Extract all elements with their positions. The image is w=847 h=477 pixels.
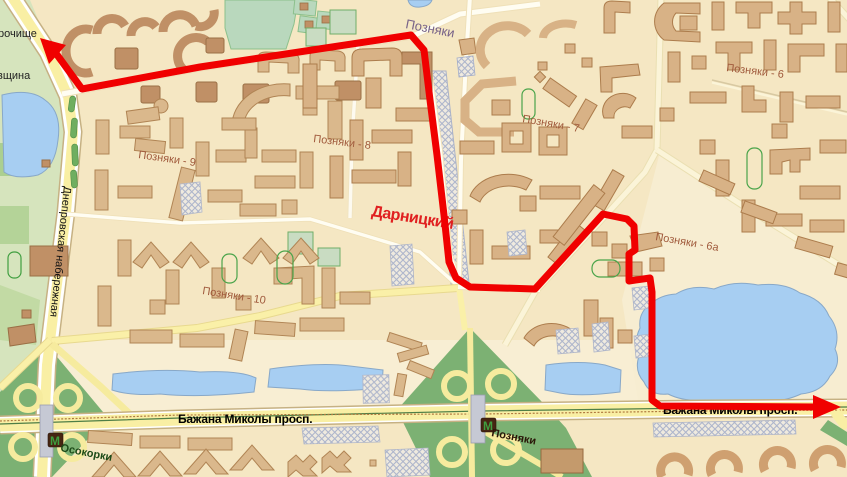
svg-text:М: М: [50, 434, 60, 448]
svg-text:вщина: вщина: [0, 70, 31, 82]
svg-text:Бажана Миколы просп.: Бажана Миколы просп.: [178, 412, 312, 426]
svg-text:рочище: рочище: [0, 28, 37, 40]
